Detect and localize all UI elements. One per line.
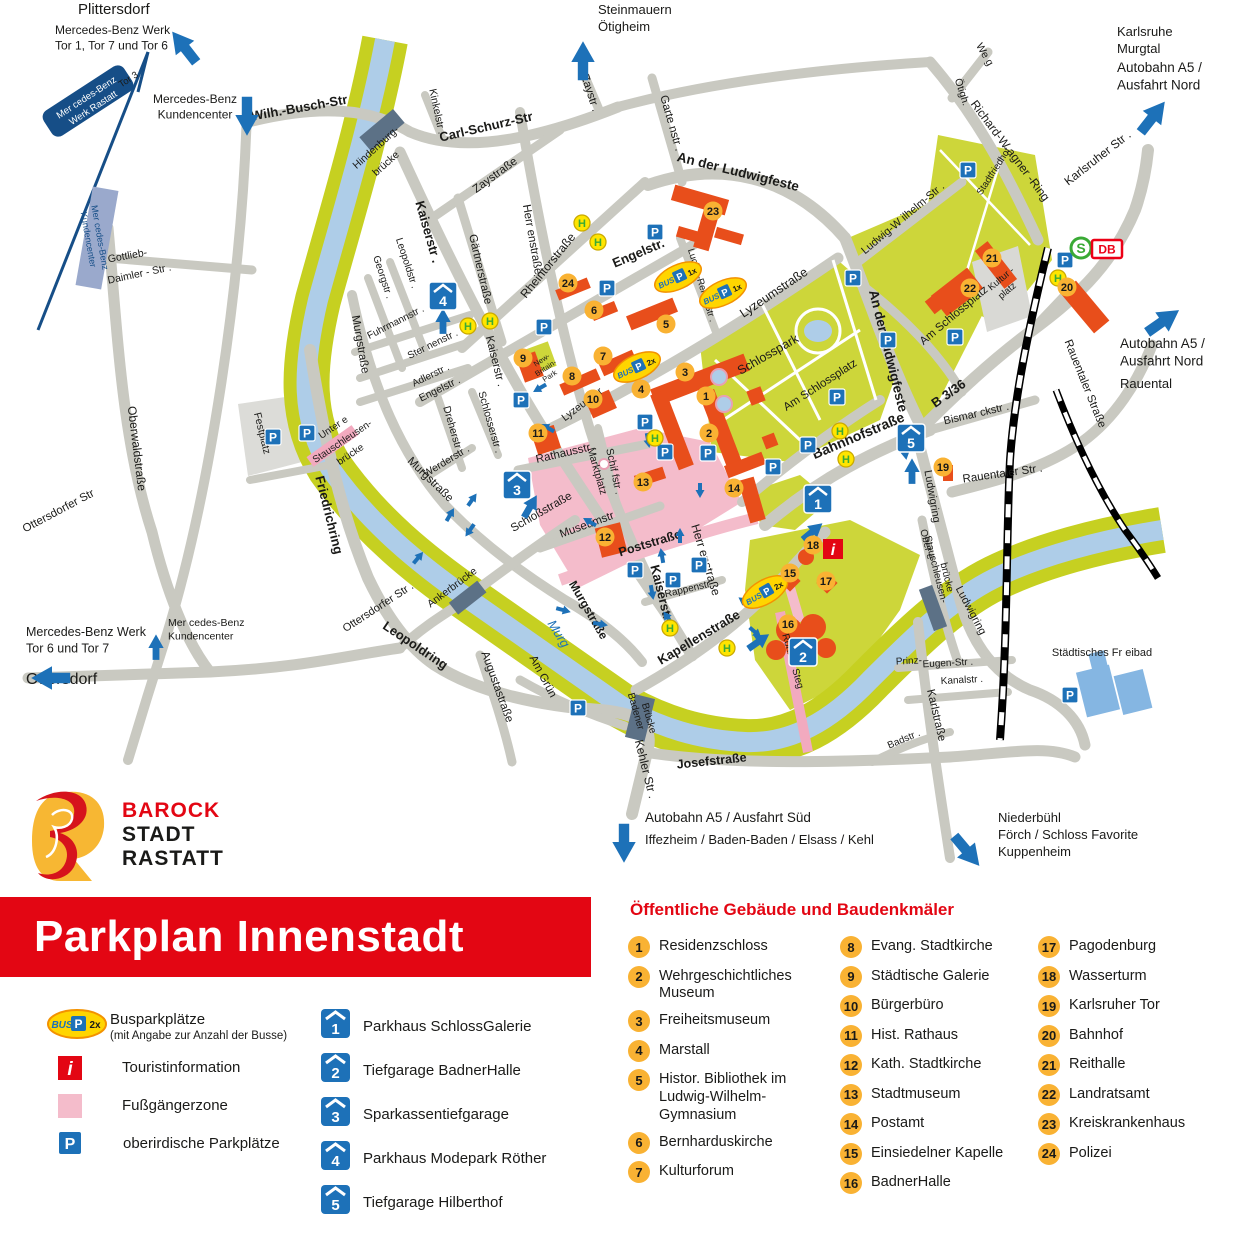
building-item-12: 12Kath. Stadtkirche: [840, 1054, 1038, 1076]
svg-text:3: 3: [513, 482, 521, 498]
svg-text:H: H: [486, 316, 494, 328]
schlosspark-pond: [804, 320, 832, 342]
building-label: Polizei: [1069, 1143, 1218, 1163]
svg-text:P: P: [574, 702, 582, 716]
svg-text:P: P: [661, 446, 669, 460]
svg-text:2: 2: [331, 1065, 339, 1082]
street-label: Wilh.-Busch-Str: [250, 92, 349, 124]
parking-icon: P: [657, 444, 673, 460]
svg-text:P: P: [641, 416, 649, 430]
poi-marker-19: 19: [934, 458, 953, 477]
svg-text:14: 14: [728, 483, 741, 495]
svg-text:P: P: [769, 461, 777, 475]
svg-text:19: 19: [937, 462, 949, 474]
parkhaus-label: Tiefgarage Hilberthof: [363, 1194, 503, 1211]
street-label: Karlsruher Str .: [1061, 127, 1133, 188]
svg-text:P: P: [517, 394, 525, 408]
parking-icon: P: [1062, 687, 1078, 703]
svg-text:S: S: [1076, 240, 1085, 256]
building-label: Freiheitsmuseum: [659, 1010, 809, 1030]
svg-text:16: 16: [782, 619, 794, 631]
svg-text:H: H: [723, 643, 731, 655]
building-item-8: 8Evang. Stadtkirche: [840, 936, 1038, 958]
poi-marker-2: 2: [700, 424, 719, 443]
svg-text:Mercedes-Benz Werk: Mercedes-Benz Werk: [26, 625, 147, 639]
svg-text:P: P: [951, 331, 959, 345]
svg-text:9: 9: [520, 353, 526, 365]
svg-text:1: 1: [331, 1021, 339, 1038]
building-number: 24: [1038, 1143, 1060, 1165]
svg-text:P: P: [704, 447, 712, 461]
building-number: 4: [628, 1040, 650, 1062]
svg-text:Kundencenter: Kundencenter: [158, 108, 233, 122]
svg-text:23: 23: [707, 206, 719, 218]
bus-stop-icon: H: [838, 451, 854, 467]
destination-label: KarlsruheMurgtal: [1117, 24, 1173, 56]
svg-text:BUS: BUS: [51, 1020, 72, 1031]
poi-marker-3: 3: [676, 363, 695, 382]
svg-text:Ausfahrt Nord: Ausfahrt Nord: [1117, 78, 1200, 93]
building-label: Wasserturm: [1069, 966, 1218, 986]
svg-text:Niederbühl: Niederbühl: [998, 810, 1061, 825]
svg-text:4: 4: [439, 293, 447, 309]
poi-marker-16: 16: [779, 615, 798, 634]
building-number: 13: [840, 1084, 862, 1106]
parking-icon: P: [845, 270, 861, 286]
building-number: 10: [840, 995, 862, 1017]
poi-marker-18: 18: [804, 536, 823, 555]
direction-arrow: [1132, 94, 1174, 139]
building-number: 23: [1038, 1113, 1060, 1135]
bus-parking-icon: BUS P 2x: [46, 1008, 110, 1040]
destination-label: Autobahn A5 /Ausfahrt Nord: [1120, 336, 1205, 369]
building-label: Stadtmuseum: [871, 1084, 1021, 1104]
parking-icon: P: [947, 329, 963, 345]
street-label: Eugen-Str .: [922, 657, 973, 671]
building-item-1: 1Residenzschloss: [628, 936, 840, 958]
building-label: BadnerHalle: [871, 1172, 1021, 1192]
poi-marker-17: 17: [817, 572, 836, 591]
legend-parkhaus-5: 5Tiefgarage Hilberthof: [320, 1184, 580, 1220]
street-label: Ludwigring: [921, 469, 942, 523]
parkplan-rastatt-map-page: Wilh.-Busch-StrCarl-Schurz-StrHindenburg…: [0, 0, 1240, 1240]
parkhaus-marker-2: 2: [789, 638, 817, 666]
legend-symbols: BUS P 2x Busparkplätze (mit Angabe zur A…: [46, 1008, 316, 1168]
building-number: 14: [840, 1113, 862, 1135]
parking-icon: P: [1057, 252, 1073, 268]
building-number: 22: [1038, 1084, 1060, 1106]
svg-text:8: 8: [569, 371, 575, 383]
building-item-21: 21Reithalle: [1038, 1054, 1218, 1076]
poi-marker-12: 12: [596, 528, 615, 547]
parkhaus-marker-1: 1: [804, 485, 832, 513]
bus-stop-icon: H: [647, 430, 663, 446]
destination-label: SteinmauernÖtigheim: [598, 2, 672, 34]
svg-text:11: 11: [532, 428, 544, 440]
svg-text:Autobahn A5 /: Autobahn A5 /: [1120, 336, 1205, 351]
parking-icon: P: [880, 332, 896, 348]
building-item-18: 18Wasserturm: [1038, 966, 1218, 988]
title-banner: Parkplan Innenstadt: [0, 897, 591, 977]
svg-text:Murgtal: Murgtal: [1117, 41, 1160, 56]
building-item-13: 13Stadtmuseum: [840, 1084, 1038, 1106]
street-label: Prinz-: [896, 655, 923, 667]
logo-line-1: BAROCK: [122, 799, 224, 823]
poi-marker-21: 21: [983, 249, 1002, 268]
svg-text:Mercedes-Benz Werk: Mercedes-Benz Werk: [55, 23, 171, 37]
svg-text:15: 15: [784, 568, 796, 580]
svg-text:20: 20: [1061, 282, 1073, 294]
poi-marker-6: 6: [585, 301, 604, 320]
building-item-14: 14Postamt: [840, 1113, 1038, 1135]
svg-text:12: 12: [599, 532, 611, 544]
svg-text:4: 4: [331, 1153, 340, 1170]
parking-icon: P: [299, 425, 315, 441]
building-label: Bernharduskirche: [659, 1132, 809, 1152]
bus-stop-icon: H: [460, 318, 476, 334]
svg-text:P: P: [74, 1017, 82, 1031]
parkhaus-label: Parkhaus SchlossGalerie: [363, 1018, 531, 1035]
parking-icon: P: [691, 557, 707, 573]
legend-tourist-label: Touristinformation: [122, 1056, 240, 1076]
building-number: 15: [840, 1143, 862, 1165]
svg-text:6: 6: [591, 305, 597, 317]
svg-text:22: 22: [964, 283, 976, 295]
building-item-24: 24Polizei: [1038, 1143, 1218, 1165]
legend-bus-label: Busparkplätze: [110, 1008, 287, 1028]
building-label: Bürgerbüro: [871, 995, 1021, 1015]
building-item-16: 16BadnerHalle: [840, 1172, 1038, 1194]
building-label: Karlsruher Tor: [1069, 995, 1218, 1015]
legend-surface-parking-label: oberirdische Parkplätze: [123, 1132, 280, 1152]
destination-label: Autobahn A5 /Ausfahrt Nord: [1117, 60, 1202, 93]
building-label: Evang. Stadtkirche: [871, 936, 1021, 956]
svg-text:P: P: [65, 1136, 76, 1153]
svg-text:5: 5: [331, 1197, 339, 1214]
svg-text:P: P: [303, 427, 311, 441]
legend-touristinformation: i Touristinformation: [46, 1056, 316, 1080]
destination-label: NiederbühlFörch / Schloss FavoriteKuppen…: [998, 810, 1138, 859]
bus-stop-icon: H: [662, 620, 678, 636]
svg-text:Förch / Schloss Favorite: Förch / Schloss Favorite: [998, 827, 1138, 842]
destination-label: Städtisches Fr eibad: [1052, 647, 1152, 659]
svg-text:H: H: [666, 623, 674, 635]
city-map: Wilh.-Busch-StrCarl-Schurz-StrHindenburg…: [0, 0, 1240, 900]
direction-arrow: [612, 824, 635, 863]
parking-icon: P: [647, 224, 663, 240]
parkhaus-label: Parkhaus Modepark Röther: [363, 1150, 546, 1167]
building-number: 17: [1038, 936, 1060, 958]
svg-text:24: 24: [562, 278, 575, 290]
building-item-2: 2Wehrgeschichtliches Museum: [628, 966, 840, 1003]
parking-icon: P: [265, 429, 281, 445]
svg-text:Tor 6 und Tor 7: Tor 6 und Tor 7: [26, 641, 109, 655]
svg-text:Ausfahrt Nord: Ausfahrt Nord: [1120, 354, 1203, 369]
parkhaus-icon: 1: [320, 1008, 351, 1044]
svg-text:Mer cedes-Benz: Mer cedes-Benz: [168, 617, 244, 629]
svg-text:i: i: [831, 542, 836, 559]
svg-text:3: 3: [331, 1109, 339, 1126]
destination-label: Mer cedes-BenzKundencenter: [168, 617, 244, 643]
building-label: Histor. Bibliothek im Ludwig-Wilhelm-Gym…: [659, 1069, 809, 1124]
svg-text:Tor 1, Tor 7 und Tor 6: Tor 1, Tor 7 und Tor 6: [55, 39, 168, 53]
building-item-11: 11Hist. Rathaus: [840, 1025, 1038, 1047]
building-label: Kath. Stadtkirche: [871, 1054, 1021, 1074]
poi-marker-22: 22: [961, 279, 980, 298]
building-item-7: 7Kulturforum: [628, 1161, 840, 1183]
legend-parkhaus-4: 4Parkhaus Modepark Röther: [320, 1140, 580, 1176]
building-number: 5: [628, 1069, 650, 1091]
destination-label: Rauental: [1120, 376, 1172, 391]
svg-text:H: H: [594, 237, 602, 249]
svg-text:7: 7: [600, 351, 606, 363]
legend-parkhaus-1: 1Parkhaus SchlossGalerie: [320, 1008, 580, 1044]
svg-text:i: i: [67, 1059, 73, 1080]
svg-text:P: P: [669, 574, 677, 588]
tourist-info-icon: i: [46, 1056, 122, 1080]
parkhaus-marker-3: 3: [503, 471, 531, 499]
svg-text:P: P: [695, 559, 703, 573]
svg-text:P: P: [884, 334, 892, 348]
poi-marker-23: 23: [704, 202, 723, 221]
logo-r-icon: [30, 785, 108, 885]
building-label: Hist. Rathaus: [871, 1025, 1021, 1045]
svg-text:18: 18: [807, 540, 819, 552]
svg-text:21: 21: [986, 253, 998, 265]
poi-marker-15: 15: [781, 564, 800, 583]
building-number: 11: [840, 1025, 862, 1047]
parkhaus-icon: 2: [320, 1052, 351, 1088]
direction-arrow: [571, 41, 594, 80]
page-title: Parkplan Innenstadt: [34, 912, 464, 962]
building-number: 6: [628, 1132, 650, 1154]
svg-text:Steinmauern: Steinmauern: [598, 2, 672, 17]
svg-text:17: 17: [820, 576, 832, 588]
svg-text:Autobahn A5 / Ausfahrt Süd: Autobahn A5 / Ausfahrt Süd: [645, 810, 811, 825]
sbahn-icon: S: [1071, 238, 1091, 258]
svg-text:P: P: [651, 226, 659, 240]
svg-text:Mercedes-Benz: Mercedes-Benz: [153, 92, 237, 106]
building-item-9: 9Städtische Galerie: [840, 966, 1038, 988]
logo-line-3: RASTATT: [122, 847, 224, 871]
building-number: 8: [840, 936, 862, 958]
parkhaus-icon: 4: [320, 1140, 351, 1176]
poi-marker-7: 7: [594, 347, 613, 366]
poi-marker-20: 20: [1058, 278, 1077, 297]
svg-text:2x: 2x: [89, 1020, 101, 1031]
building-number: 7: [628, 1161, 650, 1183]
building-item-10: 10Bürgerbüro: [840, 995, 1038, 1017]
svg-text:DB: DB: [1098, 243, 1116, 257]
svg-text:P: P: [849, 272, 857, 286]
svg-text:H: H: [464, 321, 472, 333]
surface-parking-icon: P: [46, 1132, 123, 1154]
building-item-17: 17Pagodenburg: [1038, 936, 1218, 958]
logo-line-2: STADT: [122, 823, 224, 847]
building-label: Marstall: [659, 1040, 809, 1060]
svg-text:P: P: [631, 564, 639, 578]
legend-busparkplaetze: BUS P 2x Busparkplätze (mit Angabe zur A…: [46, 1008, 316, 1042]
parkhaus-label: Tiefgarage BadnerHalle: [363, 1062, 521, 1079]
legend-pedestrian-label: Fußgängerzone: [122, 1094, 228, 1114]
svg-text:Karlsruhe: Karlsruhe: [1117, 24, 1173, 39]
poi-marker-14: 14: [725, 479, 744, 498]
parking-icon: P: [829, 389, 845, 405]
building-label: Reithalle: [1069, 1054, 1218, 1074]
svg-text:Ötigheim: Ötigheim: [598, 19, 650, 34]
poi-marker-5: 5: [657, 315, 676, 334]
building-label: Pagodenburg: [1069, 936, 1218, 956]
tourist-info-icon: i: [823, 539, 843, 559]
svg-text:1: 1: [703, 391, 709, 403]
street-label: Ottersdorfer Str: [21, 487, 97, 535]
pedestrian-zone-swatch: [46, 1094, 122, 1118]
building-number: 9: [840, 966, 862, 988]
svg-text:Iffezheim / Baden-Baden / Elsa: Iffezheim / Baden-Baden / Elsass / Kehl: [645, 832, 874, 847]
building-item-23: 23Kreiskrankenhaus: [1038, 1113, 1218, 1135]
svg-text:Rauental: Rauental: [1120, 376, 1172, 391]
svg-text:2: 2: [706, 428, 712, 440]
svg-text:P: P: [269, 431, 277, 445]
parking-icon: P: [700, 445, 716, 461]
parkhaus-marker-5: 5: [897, 424, 925, 452]
bus-stop-icon: H: [719, 640, 735, 656]
parking-icon: P: [513, 392, 529, 408]
direction-arrow: [235, 97, 258, 136]
destination-label: Mercedes-Benz WerkTor 1, Tor 7 und Tor 6: [55, 23, 171, 53]
access-arrow: [904, 458, 919, 484]
building-label: Residenzschloss: [659, 936, 809, 956]
poi-marker-1: 1: [697, 387, 716, 406]
svg-text:5: 5: [907, 435, 915, 451]
svg-text:P: P: [1061, 254, 1069, 268]
svg-text:H: H: [651, 433, 659, 445]
building-label: Kreiskrankenhaus: [1069, 1113, 1218, 1133]
parking-icon: P: [627, 562, 643, 578]
svg-text:Städtisches Fr eibad: Städtisches Fr eibad: [1052, 647, 1152, 659]
parkhaus-label: Sparkassentiefgarage: [363, 1106, 509, 1123]
building-number: 18: [1038, 966, 1060, 988]
building-number: 19: [1038, 995, 1060, 1017]
poi-marker-11: 11: [529, 424, 548, 443]
svg-text:P: P: [603, 282, 611, 296]
poi-marker-13: 13: [634, 473, 653, 492]
building-number: 2: [628, 966, 650, 988]
building-label: Einsiedelner Kapelle: [871, 1143, 1021, 1163]
destination-label: Mercedes-BenzKundencenter: [153, 92, 237, 122]
poi-marker-24: 24: [559, 274, 578, 293]
parkhaus-icon: 5: [320, 1184, 351, 1220]
svg-text:Kuppenheim: Kuppenheim: [998, 844, 1071, 859]
svg-text:H: H: [578, 218, 586, 230]
poi-marker-9: 9: [514, 349, 533, 368]
building-label: Kulturforum: [659, 1161, 809, 1181]
svg-text:P: P: [540, 321, 548, 335]
railway-line: [1000, 248, 1158, 740]
bus-stop-icon: H: [482, 313, 498, 329]
parking-icon: P: [960, 162, 976, 178]
parking-icon: P: [637, 414, 653, 430]
building-item-3: 3Freiheitsmuseum: [628, 1010, 840, 1032]
svg-text:P: P: [964, 164, 972, 178]
building-number: 1: [628, 936, 650, 958]
building-number: 21: [1038, 1054, 1060, 1076]
parkhaus-icon: 3: [320, 1096, 351, 1132]
legend-bus-sublabel: (mit Angabe zur Anzahl der Busse): [110, 1030, 287, 1042]
poi-marker-10: 10: [584, 390, 603, 409]
svg-text:H: H: [842, 454, 850, 466]
building-item-20: 20Bahnhof: [1038, 1025, 1218, 1047]
parking-icon: P: [665, 572, 681, 588]
poi-marker-8: 8: [563, 367, 582, 386]
parkhaus-marker-4: 4: [429, 282, 457, 310]
destination-label: Plittersdorf: [78, 1, 151, 18]
building-item-19: 19Karlsruher Tor: [1038, 995, 1218, 1017]
svg-text:P: P: [1066, 689, 1074, 703]
street-label: Kanalstr .: [940, 674, 983, 687]
building-label: Städtische Galerie: [871, 966, 1021, 986]
svg-text:5: 5: [663, 319, 669, 331]
svg-text:3: 3: [682, 367, 688, 379]
bus-stop-icon: H: [574, 215, 590, 231]
bus-stop-icon: H: [832, 423, 848, 439]
freibad-buildings: [1076, 650, 1152, 717]
svg-text:1: 1: [814, 496, 822, 512]
svg-text:10: 10: [587, 394, 599, 406]
street-label: Zaystraße: [471, 156, 520, 196]
buildings-heading: Öffentliche Gebäude und Baudenkmäler: [630, 900, 1228, 920]
svg-text:P: P: [804, 439, 812, 453]
legend-parkhaus-2: 2Tiefgarage BadnerHalle: [320, 1052, 580, 1088]
building-label: Landratsamt: [1069, 1084, 1218, 1104]
building-number: 20: [1038, 1025, 1060, 1047]
parking-icon: P: [536, 319, 552, 335]
building-label: Postamt: [871, 1113, 1021, 1133]
destination-label: Mercedes-Benz WerkTor 6 und Tor 7: [26, 625, 147, 655]
legend-oberirdische-parkplaetze: P oberirdische Parkplätze: [46, 1132, 316, 1154]
svg-text:4: 4: [638, 384, 645, 396]
svg-text:Plittersdorf: Plittersdorf: [78, 1, 151, 18]
building-item-22: 22Landratsamt: [1038, 1084, 1218, 1106]
building-number: 3: [628, 1010, 650, 1032]
poi-marker-4: 4: [632, 380, 651, 399]
destination-label: Autobahn A5 / Ausfahrt Süd: [645, 810, 811, 825]
destination-label: Iffezheim / Baden-Baden / Elsass / Kehl: [645, 832, 874, 847]
buildings-legend: Öffentliche Gebäude und Baudenkmäler 1Re…: [628, 900, 1228, 1202]
bus-stop-icon: H: [590, 234, 606, 250]
legend-fussgaengerzone: Fußgängerzone: [46, 1094, 316, 1118]
building-item-15: 15Einsiedelner Kapelle: [840, 1143, 1038, 1165]
svg-text:P: P: [833, 391, 841, 405]
building-item-5: 5Histor. Bibliothek im Ludwig-Wilhelm-Gy…: [628, 1069, 840, 1124]
building-label: Bahnhof: [1069, 1025, 1218, 1045]
svg-text:13: 13: [637, 477, 649, 489]
parking-icon: P: [570, 700, 586, 716]
building-item-4: 4Marstall: [628, 1040, 840, 1062]
building-number: 12: [840, 1054, 862, 1076]
building-number: 16: [840, 1172, 862, 1194]
barock-stadt-rastatt-logo: BAROCK STADT RASTATT: [30, 780, 290, 890]
svg-text:Kundencenter: Kundencenter: [168, 631, 234, 643]
parking-icon: P: [599, 280, 615, 296]
svg-text:2: 2: [799, 649, 807, 665]
oneway-arrow: [464, 491, 480, 508]
building-label: Wehrgeschichtliches Museum: [659, 966, 809, 1003]
building-item-6: 6Bernharduskirche: [628, 1132, 840, 1154]
legend-parkhaeuser: 1Parkhaus SchlossGalerie2Tiefgarage Badn…: [320, 1008, 580, 1228]
parking-icon: P: [765, 459, 781, 475]
parking-icon: P: [800, 437, 816, 453]
